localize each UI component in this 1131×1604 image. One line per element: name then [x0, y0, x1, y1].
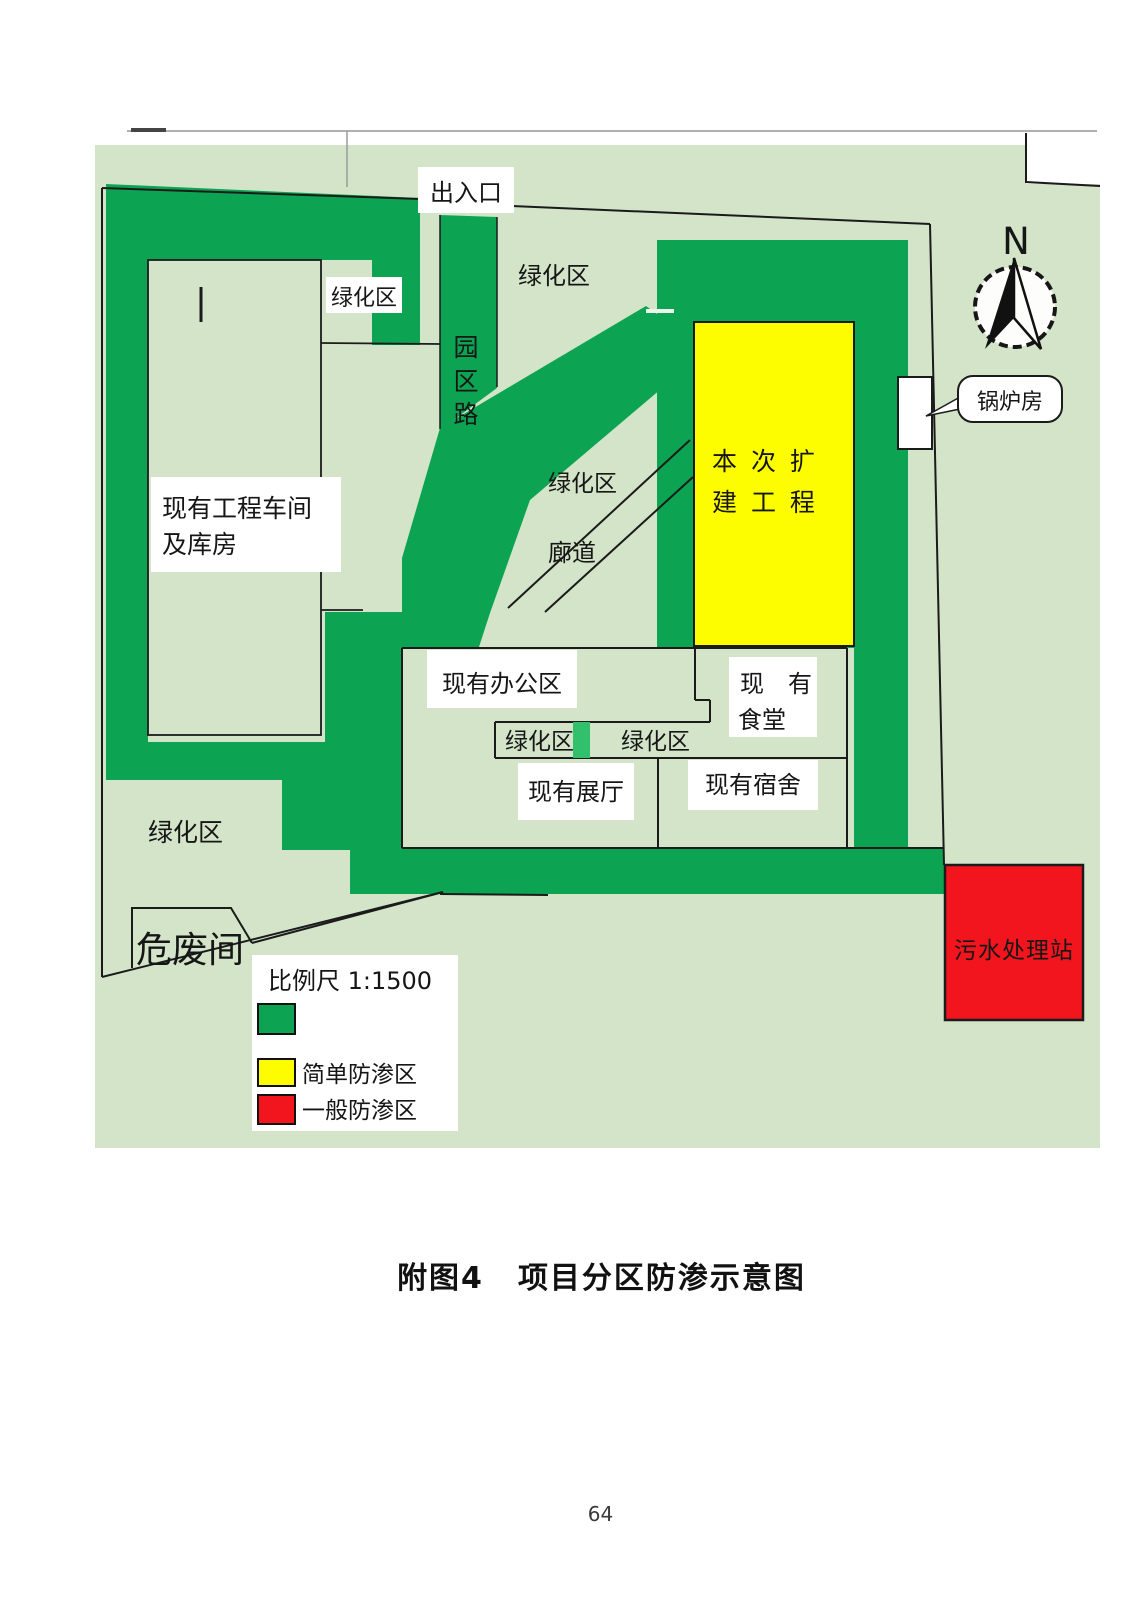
legend-swatch-green	[258, 1004, 295, 1034]
compass-north-label: N	[1002, 220, 1030, 263]
legend-label-simple-antiseepage: 简单防渗区	[302, 1062, 417, 1088]
green-area-label-strip-right: 绿化区	[621, 729, 690, 755]
document-page: N 出入口 绿化区 绿化区 绿化区 绿化区 绿化区 绿化区 园 区 路 廊道 现…	[0, 0, 1131, 1600]
green-area-label-topleft: 绿化区	[331, 286, 397, 311]
road-vertical-band	[325, 612, 402, 848]
exhibition-label: 现有展厅	[528, 778, 624, 806]
dormitory-label: 现有宿舍	[705, 771, 801, 799]
legend-swatch-red	[258, 1095, 295, 1124]
workshop-label-line1: 现有工程车间	[162, 494, 312, 523]
legend-scale-label: 比例尺 1:1500	[268, 967, 432, 995]
entrance-label: 出入口	[430, 179, 502, 207]
figure-caption-number: 附图4	[397, 1261, 484, 1296]
figure-caption-title: 项目分区防渗示意图	[518, 1261, 806, 1296]
office-label: 现有办公区	[442, 670, 562, 698]
green-area-label-top: 绿化区	[518, 262, 590, 290]
band-bottom-edge	[440, 894, 548, 895]
expansion-label-line1: 本 次 扩	[712, 447, 818, 476]
strip-green-square	[573, 722, 590, 758]
map-topright-notch	[1026, 131, 1100, 184]
expansion-label-line2: 建 工 程	[712, 488, 818, 517]
green-area-label-mid: 绿化区	[548, 471, 617, 497]
legend-swatch-yellow	[258, 1059, 295, 1086]
legend-label-general-antiseepage: 一般防渗区	[302, 1098, 417, 1124]
page-number: 64	[35, 1502, 1131, 1526]
boiler-label: 锅炉房	[977, 390, 1043, 415]
figure-caption: 附图4项目分区防渗示意图	[36, 1253, 1131, 1297]
boiler-building	[898, 377, 932, 449]
canteen-label-line1: 现 有	[740, 670, 812, 698]
expansion-project-area	[694, 322, 854, 646]
park-road-label: 园 区 路	[453, 333, 478, 429]
workshop-step-line-top	[321, 343, 440, 344]
green-area-label-bottomleft: 绿化区	[148, 818, 223, 847]
hazardous-waste-label: 危废间	[136, 930, 244, 971]
park-road-char-2: 区	[453, 367, 478, 396]
site-plan-figure: N 出入口 绿化区 绿化区 绿化区 绿化区 绿化区 绿化区 园 区 路 廊道 现…	[0, 0, 1131, 1600]
corridor-label: 廊道	[548, 539, 596, 567]
green-area-label-strip-left: 绿化区	[505, 729, 574, 755]
park-road-char-1: 园	[453, 333, 478, 362]
sewage-station-label: 污水处理站	[954, 938, 1074, 964]
park-road-char-3: 路	[453, 400, 478, 429]
canteen-label-line2: 食堂	[738, 706, 786, 734]
workshop-label-line2: 及库房	[162, 530, 237, 559]
road-bottom-band	[350, 848, 944, 894]
